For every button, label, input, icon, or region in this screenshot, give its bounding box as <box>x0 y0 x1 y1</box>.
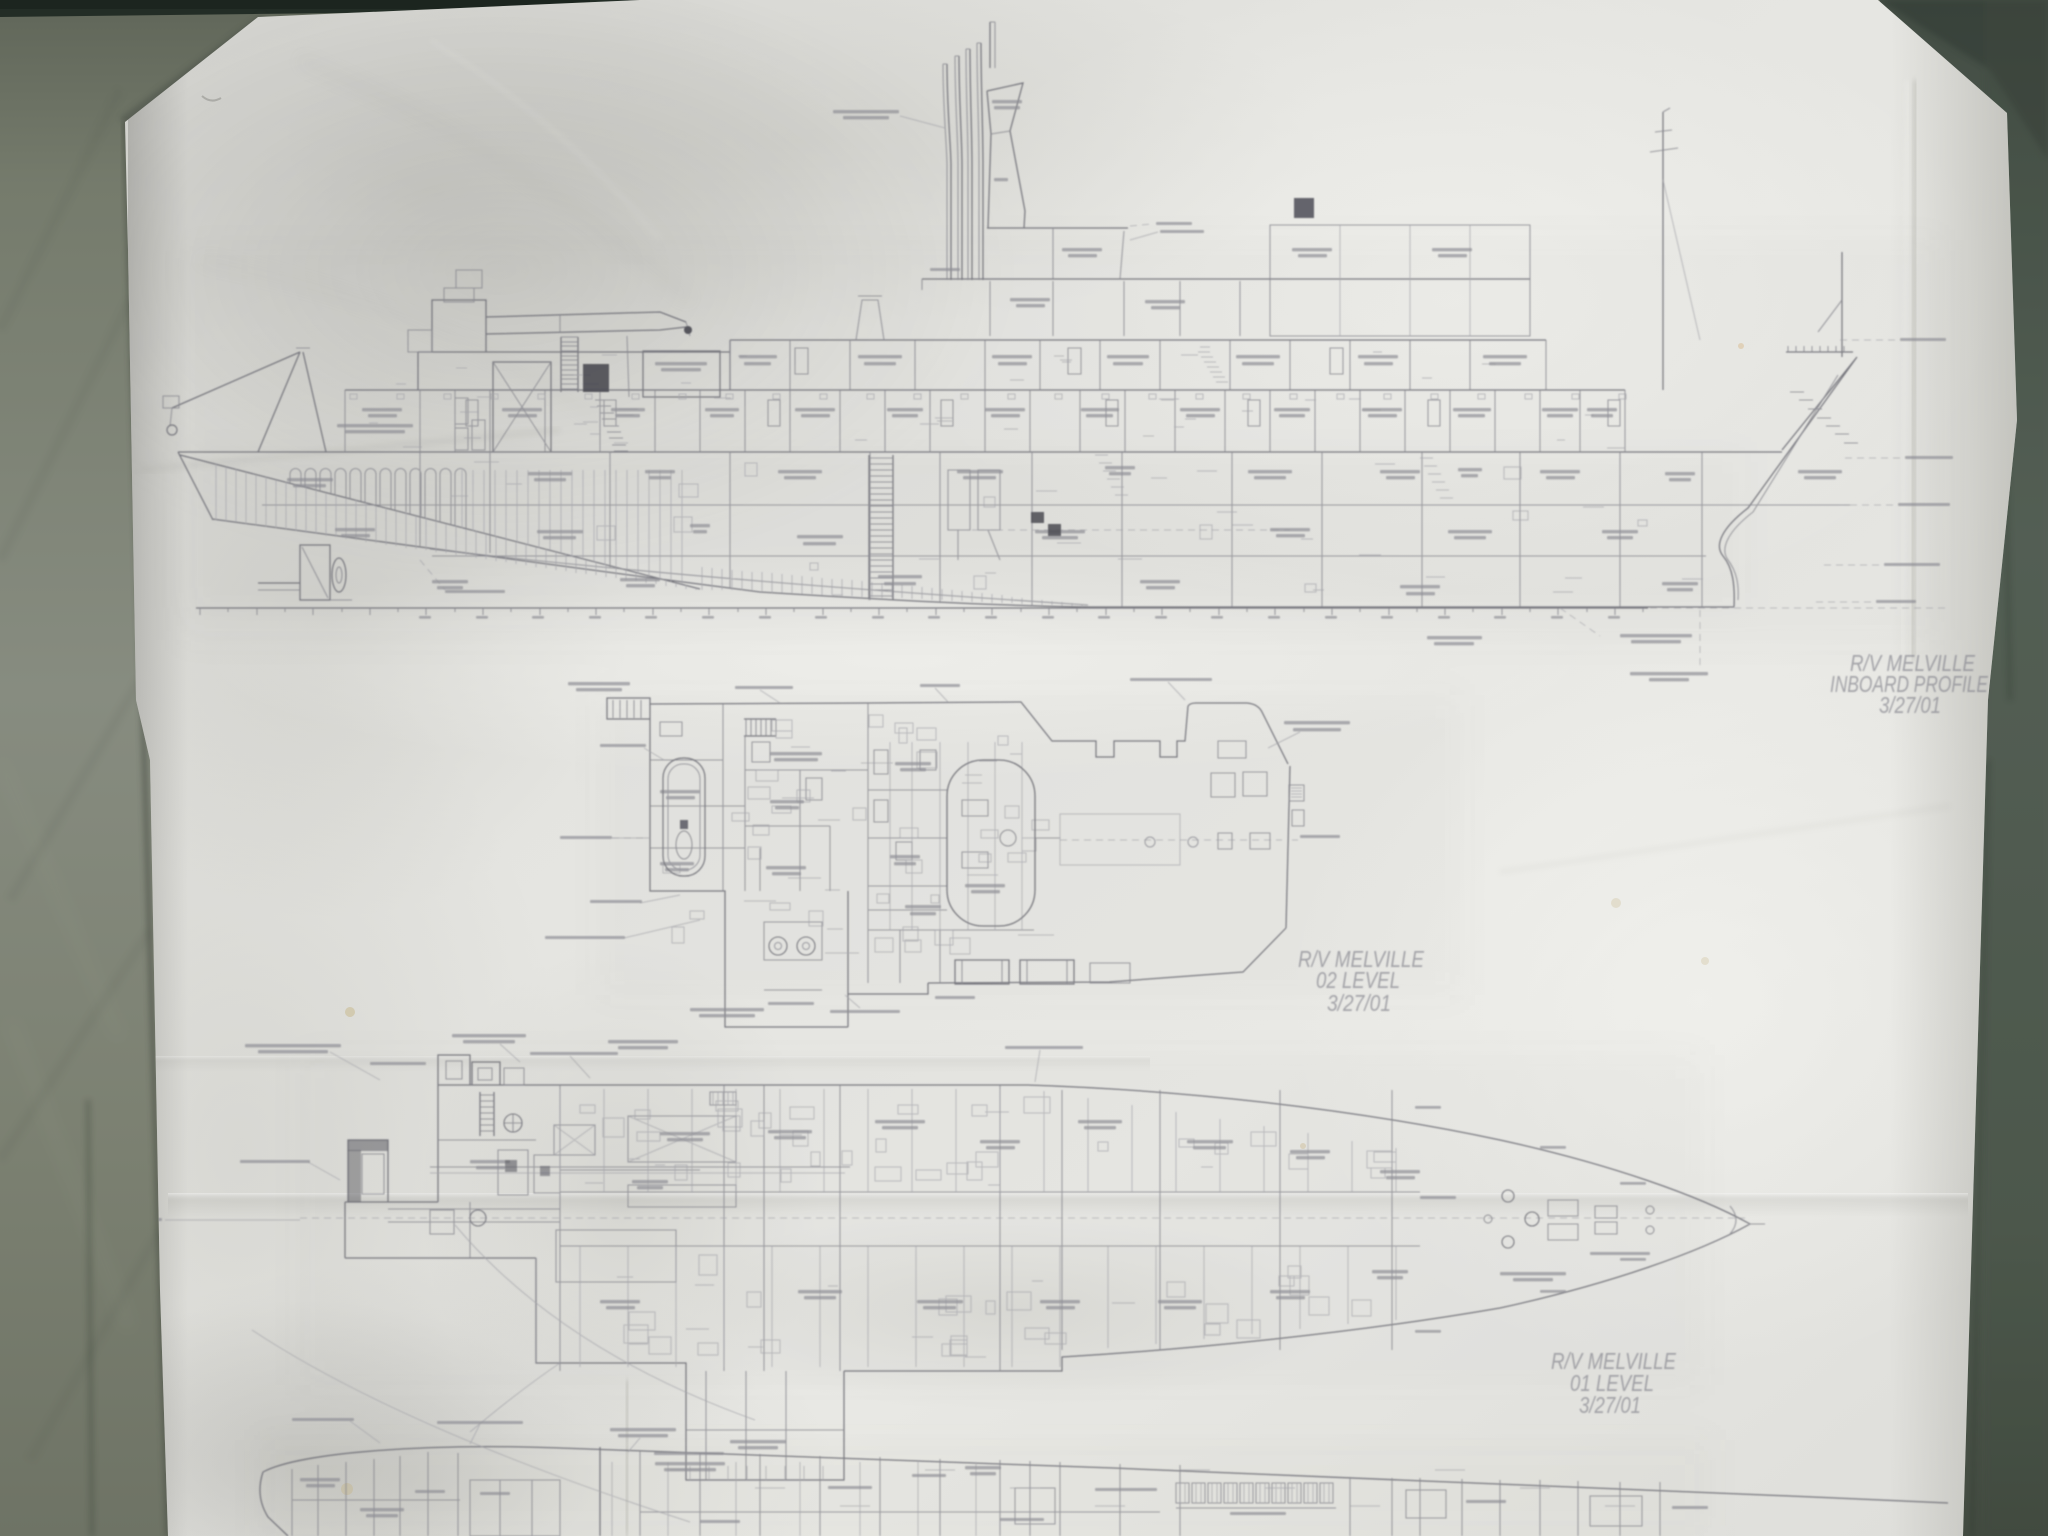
svg-text:3/27/01: 3/27/01 <box>1879 692 1941 718</box>
svg-text:3/27/01: 3/27/01 <box>1579 1392 1641 1418</box>
svg-text:3/27/01: 3/27/01 <box>1327 990 1391 1016</box>
